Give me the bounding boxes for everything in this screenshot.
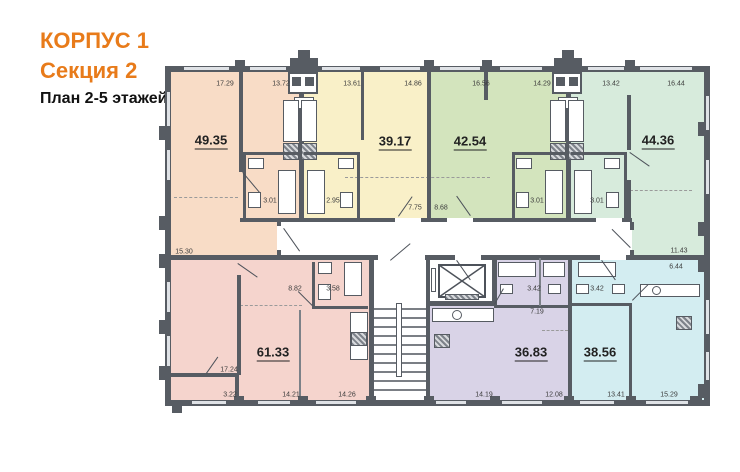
dimension-label: 3.01 xyxy=(590,198,604,205)
apartment-region-61-33 xyxy=(168,258,372,402)
dimension-label: 3.01 xyxy=(263,198,277,205)
bathtub-icon xyxy=(307,170,325,214)
window xyxy=(588,67,624,70)
pilaster xyxy=(698,258,706,272)
stove-icon xyxy=(351,332,367,346)
pilaster xyxy=(698,222,706,236)
pilaster xyxy=(172,406,182,413)
kitchen-counter xyxy=(550,100,566,142)
wall xyxy=(243,152,246,219)
dimension-label: 15.30 xyxy=(175,249,193,256)
window xyxy=(167,336,170,366)
dimension-label: 16.56 xyxy=(472,81,490,88)
building-title: КОРПУС 1 xyxy=(40,28,149,54)
sink-icon xyxy=(338,158,354,169)
dimension-label: 11.43 xyxy=(671,248,688,255)
dimension-label: 6.44 xyxy=(669,264,683,271)
dashed-zone-line xyxy=(630,190,692,191)
window xyxy=(706,96,709,130)
sink-icon xyxy=(318,262,332,274)
wall xyxy=(629,303,632,400)
window xyxy=(706,300,709,334)
window xyxy=(167,282,170,312)
dimension-label: 14.26 xyxy=(338,392,356,399)
dashed-zone-line xyxy=(174,197,238,198)
window xyxy=(380,67,420,70)
dimension-label: 3.58 xyxy=(326,286,340,293)
wall xyxy=(357,152,360,219)
vent-shaft xyxy=(554,58,582,68)
stove-icon xyxy=(434,334,450,348)
sink-icon xyxy=(548,284,561,294)
wall xyxy=(304,152,360,155)
vent-hole xyxy=(305,77,314,86)
window xyxy=(706,352,709,380)
sink-icon xyxy=(452,310,462,320)
pilaster xyxy=(235,60,245,68)
wall xyxy=(630,222,634,230)
vent-shaft xyxy=(298,50,310,59)
sink-icon xyxy=(604,158,620,169)
sink-icon xyxy=(516,158,532,169)
pilaster xyxy=(625,60,635,68)
wall xyxy=(237,275,241,375)
apartment-area-label: 49.35 xyxy=(195,133,228,150)
vent-shaft xyxy=(290,58,318,68)
stair-tread xyxy=(374,389,426,391)
sink-icon xyxy=(612,284,625,294)
dimension-label: 14.29 xyxy=(533,81,551,88)
dimension-label: 14.86 xyxy=(404,81,422,88)
corridor xyxy=(278,222,632,258)
dimension-label: 12.08 xyxy=(545,392,563,399)
elevator-sill xyxy=(445,294,479,300)
pilaster xyxy=(424,396,434,404)
bathtub-icon xyxy=(543,262,565,277)
bathtub-icon xyxy=(344,262,362,296)
stair-tread xyxy=(374,380,426,382)
kitchen-counter xyxy=(283,100,299,142)
apartment-area-label: 42.54 xyxy=(454,134,487,151)
apartment-area-label: 39.17 xyxy=(379,134,412,151)
vent-shaft xyxy=(562,50,574,59)
wall xyxy=(361,72,364,140)
bathtub-icon xyxy=(574,170,592,214)
dimension-label: 16.44 xyxy=(667,81,685,88)
window xyxy=(184,67,229,70)
toilet-icon xyxy=(340,192,353,208)
wall xyxy=(539,258,541,306)
window xyxy=(440,67,480,70)
pilaster xyxy=(424,60,434,68)
bathtub-icon xyxy=(278,170,296,214)
dimension-label: 13.72 xyxy=(272,81,290,88)
vent-hole xyxy=(292,77,301,86)
kitchen-counter xyxy=(568,100,584,142)
dimension-label: 14.21 xyxy=(282,392,300,399)
wall xyxy=(243,152,300,155)
sink-icon xyxy=(652,286,661,295)
kitchen-counter xyxy=(301,100,317,142)
window xyxy=(250,67,286,70)
pilaster xyxy=(698,122,706,136)
bathtub-icon xyxy=(498,262,536,277)
window xyxy=(322,67,360,70)
toilet-icon xyxy=(516,192,529,208)
apartment-area-label: 36.83 xyxy=(515,345,548,362)
wall xyxy=(427,72,431,222)
wall xyxy=(627,95,631,150)
wall xyxy=(165,255,378,260)
door-opening xyxy=(455,255,481,260)
window xyxy=(502,401,542,404)
dashed-zone-line xyxy=(542,330,568,331)
dimension-label: 7.75 xyxy=(408,205,422,212)
window xyxy=(258,401,290,404)
apartment-area-label: 61.33 xyxy=(257,345,290,362)
wall xyxy=(171,373,238,377)
window xyxy=(167,92,170,126)
pilaster xyxy=(159,366,167,380)
dimension-label: 3.01 xyxy=(530,198,544,205)
wall xyxy=(426,258,430,402)
dimension-label: 14.19 xyxy=(475,392,493,399)
dashed-zone-line xyxy=(345,177,490,178)
dimension-label: 3.22 xyxy=(223,392,237,399)
pilaster xyxy=(690,396,702,406)
stair-stringer xyxy=(396,303,402,377)
sink-icon xyxy=(576,284,589,294)
apartment-area-label: 44.36 xyxy=(642,133,675,150)
stove-icon xyxy=(676,316,692,330)
toilet-icon xyxy=(606,192,619,208)
door-opening xyxy=(600,255,626,260)
door-opening xyxy=(447,218,473,222)
window xyxy=(580,401,614,404)
dimension-label: 15.29 xyxy=(660,392,678,399)
wall xyxy=(627,180,631,222)
kitchen-counter xyxy=(432,308,494,322)
dimension-label: 3.42 xyxy=(590,286,604,293)
pilaster xyxy=(159,320,167,334)
wall xyxy=(624,152,627,219)
pilaster xyxy=(482,60,492,68)
toilet-icon xyxy=(248,192,261,208)
floor-plan-page: КОРПУС 1 Секция 2 План 2-5 этажей xyxy=(0,0,740,472)
window xyxy=(316,401,356,404)
pilaster xyxy=(366,396,376,404)
dimension-label: 13.42 xyxy=(602,81,620,88)
apartment-area-label: 38.56 xyxy=(584,345,617,362)
window xyxy=(706,160,709,194)
door-opening xyxy=(596,218,622,222)
window xyxy=(500,67,542,70)
pilaster xyxy=(159,216,167,230)
dimension-label: 7.19 xyxy=(530,309,544,316)
wall xyxy=(312,306,368,309)
wall xyxy=(299,310,301,400)
bathtub-icon xyxy=(545,170,563,214)
plan-subtitle: План 2-5 этажей xyxy=(40,90,167,108)
dimension-label: 2.95 xyxy=(326,198,340,205)
wall xyxy=(571,152,627,155)
wall xyxy=(312,262,315,308)
door-opening xyxy=(277,226,281,250)
pilaster xyxy=(159,254,167,268)
dimension-label: 3.42 xyxy=(527,286,541,293)
wall xyxy=(240,218,632,222)
vent-hole xyxy=(569,77,578,86)
window xyxy=(192,401,226,404)
sink-icon xyxy=(248,158,264,169)
window xyxy=(640,67,692,70)
dimension-label: 13.61 xyxy=(343,81,361,88)
pilaster xyxy=(159,126,167,140)
window xyxy=(436,401,466,404)
wall xyxy=(572,303,632,306)
wall xyxy=(512,152,515,219)
kitchen-counter xyxy=(640,284,700,297)
dimension-label: 17.24 xyxy=(220,367,238,374)
dimension-label: 8.68 xyxy=(434,205,448,212)
window xyxy=(646,401,688,404)
pilaster xyxy=(564,396,574,404)
pilaster xyxy=(626,396,636,404)
wall xyxy=(568,258,572,402)
elevator-door xyxy=(431,268,436,292)
vent-hole xyxy=(556,77,565,86)
apartment-region-38-56 xyxy=(568,258,704,402)
door-opening xyxy=(395,218,421,222)
window xyxy=(167,150,170,180)
section-title: Секция 2 xyxy=(40,58,137,84)
dashed-zone-line xyxy=(240,305,302,306)
dimension-label: 13.41 xyxy=(607,392,625,399)
wall xyxy=(428,301,497,306)
dimension-label: 17.29 xyxy=(216,81,234,88)
wall xyxy=(512,152,567,155)
dimension-label: 8.82 xyxy=(288,286,302,293)
